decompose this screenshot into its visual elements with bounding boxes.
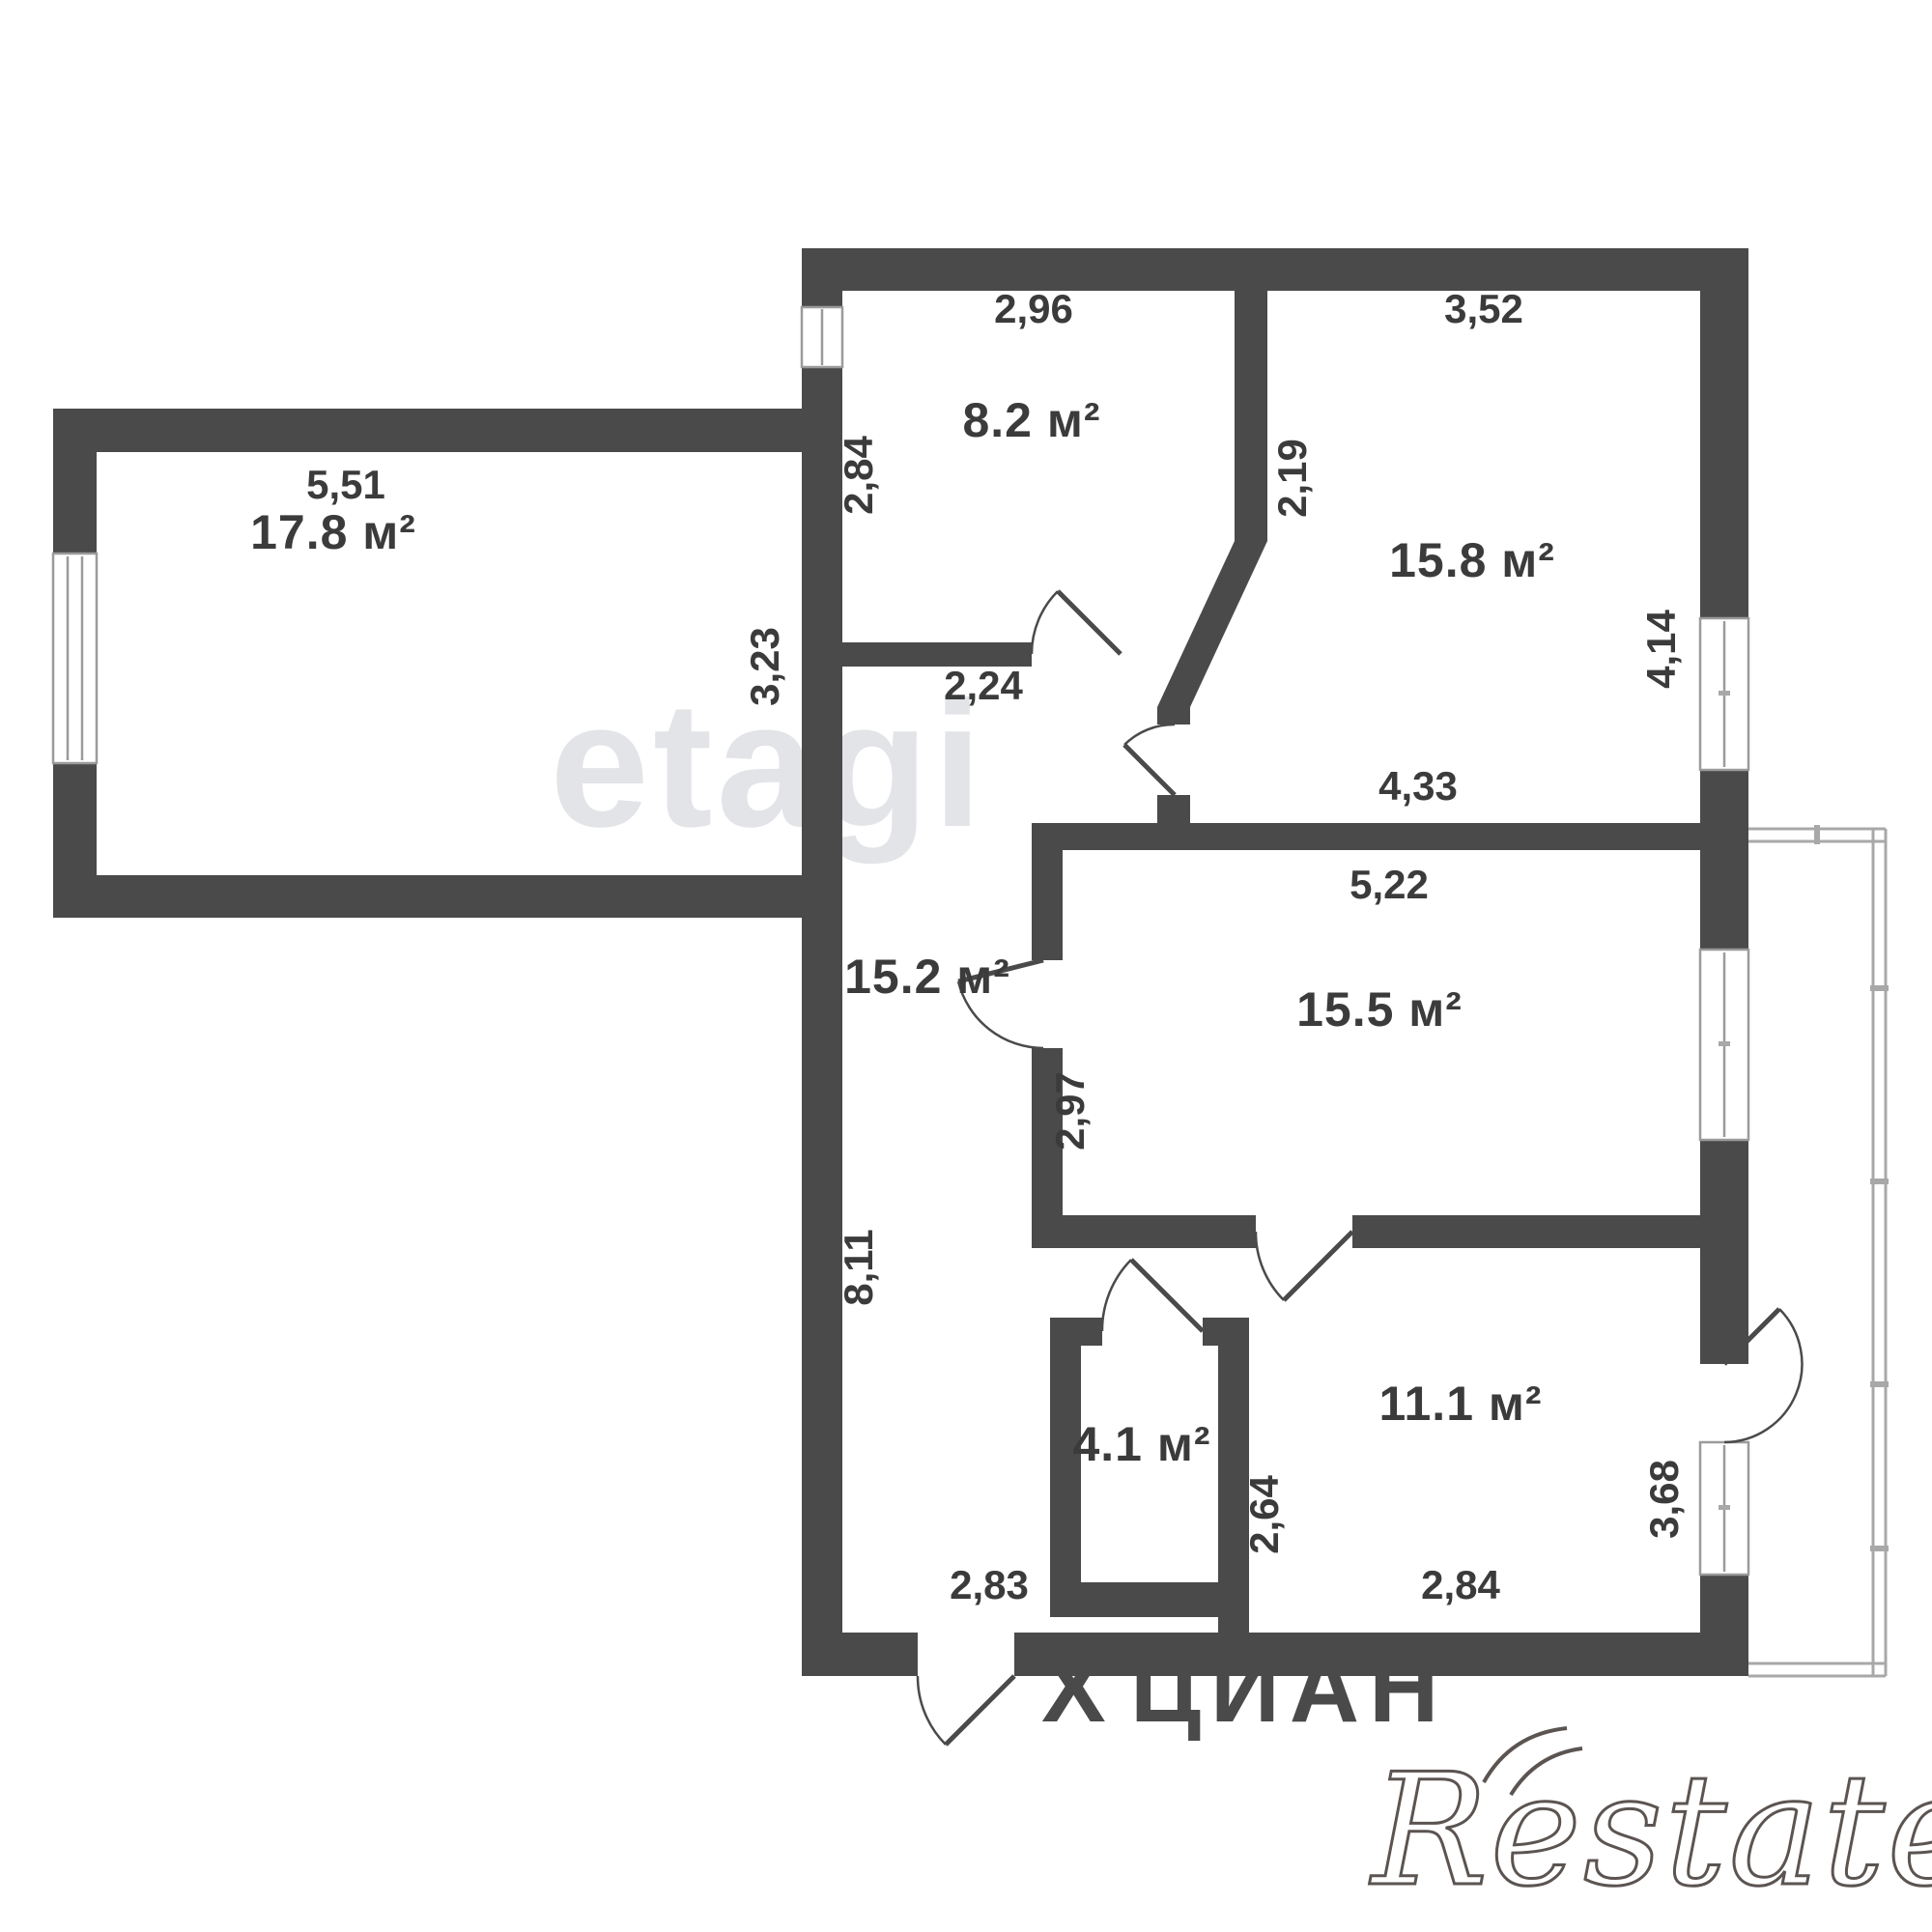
wall-divider-stub-top: [1157, 707, 1190, 724]
dim-2-97: 2,97: [1047, 1071, 1093, 1151]
wall-wing-left-upper: [53, 409, 97, 554]
wall-left-main: [802, 367, 842, 1633]
room-label-17-8: 17.8 м²: [250, 505, 416, 559]
dim-2-84-left: 2,84: [836, 435, 881, 514]
room-label-15-8: 15.8 м²: [1389, 533, 1555, 587]
balcony-tick: [1870, 1179, 1889, 1184]
wall-right-2: [1700, 770, 1748, 950]
window-15-5: [1700, 950, 1748, 1140]
balcony-tick: [1870, 1546, 1889, 1551]
wall-right-1: [1700, 248, 1748, 618]
room-label-15-2: 15.2 м²: [844, 950, 1010, 1004]
dim-8-11: 8,11: [836, 1229, 881, 1305]
wall-15-5-bottom-right: [1352, 1215, 1700, 1248]
wall-15-5-bottom-left: [1032, 1215, 1256, 1248]
window-tick: [1719, 691, 1730, 696]
wall-right-3: [1700, 1140, 1748, 1364]
wall-divider-upper: [1235, 288, 1267, 541]
window-tick: [1719, 1505, 1730, 1510]
window-8-2: [802, 307, 842, 367]
wall-wing-bottom: [53, 875, 802, 918]
window-glass: [53, 554, 97, 763]
floor-plan: etagi: [0, 0, 1932, 1932]
dim-3-52: 3,52: [1444, 286, 1523, 331]
wall-15-5-top: [1032, 823, 1700, 850]
balcony-tick: [1814, 825, 1820, 844]
dim-2-84-bottom: 2,84: [1421, 1562, 1500, 1607]
watermark-restate: Restate: [1369, 1728, 1932, 1920]
watermark-cian-text: ЦИАН: [1130, 1634, 1448, 1743]
wall-4-1-bottom: [1050, 1582, 1249, 1617]
dim-2-64: 2,64: [1241, 1474, 1287, 1553]
dim-3-68: 3,68: [1641, 1460, 1687, 1539]
window-tick: [1719, 1041, 1730, 1046]
window-17-8: [53, 554, 97, 763]
watermark-restate-text: Restate: [1369, 1740, 1932, 1920]
dim-5-22: 5,22: [1350, 862, 1429, 907]
wall-left-upper: [802, 248, 842, 307]
dim-3-23: 3,23: [742, 627, 787, 706]
room-label-15-5: 15.5 м²: [1296, 982, 1463, 1037]
wall-wing-top: [53, 409, 802, 452]
wall-15-5-left-upper: [1032, 850, 1063, 960]
balcony-tick: [1870, 985, 1889, 991]
wall-top: [802, 248, 1748, 291]
window-15-8: [1700, 618, 1748, 770]
watermark-cian-mark: Х: [1041, 1634, 1116, 1743]
dim-5-51: 5,51: [306, 462, 385, 507]
room-label-11-1: 11.1 м²: [1378, 1377, 1542, 1431]
dim-2-24: 2,24: [944, 663, 1023, 708]
dim-2-19: 2,19: [1269, 439, 1315, 518]
dim-4-14: 4,14: [1638, 609, 1684, 688]
wall-bottom-left: [802, 1633, 918, 1676]
room-label-8-2: 8.2 м²: [962, 393, 1100, 447]
room-label-4-1: 4.1 м²: [1072, 1417, 1210, 1471]
dim-2-83: 2,83: [950, 1562, 1029, 1607]
wall-4-1-top-left: [1050, 1318, 1102, 1346]
watermark-cian: Х ЦИАН: [1041, 1634, 1448, 1743]
window-11-1: [1700, 1442, 1748, 1575]
wall-4-1-top-right: [1203, 1318, 1218, 1346]
dim-2-96: 2,96: [994, 286, 1073, 331]
balcony-tick: [1870, 1381, 1889, 1387]
dim-4-33: 4,33: [1378, 763, 1458, 809]
